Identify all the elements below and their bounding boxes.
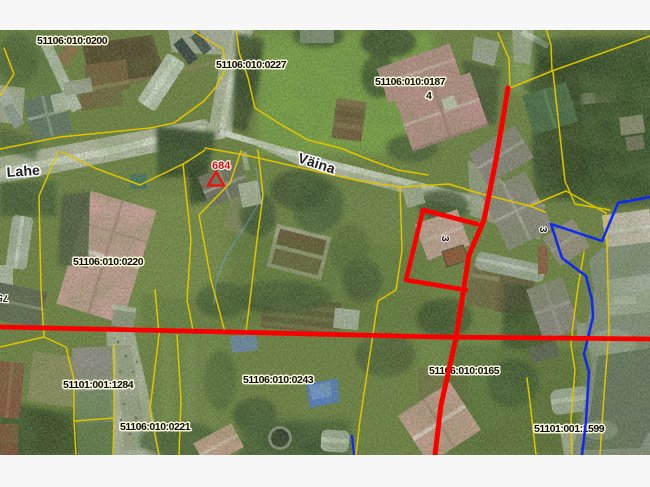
svg-text:51106:010:0243: 51106:010:0243 xyxy=(243,374,314,386)
svg-text:4: 4 xyxy=(426,90,432,102)
svg-text:Lahe: Lahe xyxy=(6,162,41,180)
svg-text:51106:010:0220: 51106:010:0220 xyxy=(73,256,144,268)
svg-text:51106:010:0221: 51106:010:0221 xyxy=(120,421,191,433)
svg-text:51106:010:0187: 51106:010:0187 xyxy=(375,76,446,88)
svg-text:51101:001:1284: 51101:001:1284 xyxy=(63,379,134,391)
svg-text:684: 684 xyxy=(212,160,231,172)
svg-text:51106:010:0200: 51106:010:0200 xyxy=(37,35,108,47)
svg-text:51106:010:0227: 51106:010:0227 xyxy=(216,59,287,71)
svg-text:3: 3 xyxy=(537,227,548,233)
svg-text:51106:010:0165: 51106:010:0165 xyxy=(429,365,500,377)
svg-text:3: 3 xyxy=(439,236,450,242)
svg-text:51101:001:1599: 51101:001:1599 xyxy=(534,423,605,435)
svg-text:75: 75 xyxy=(0,291,9,303)
